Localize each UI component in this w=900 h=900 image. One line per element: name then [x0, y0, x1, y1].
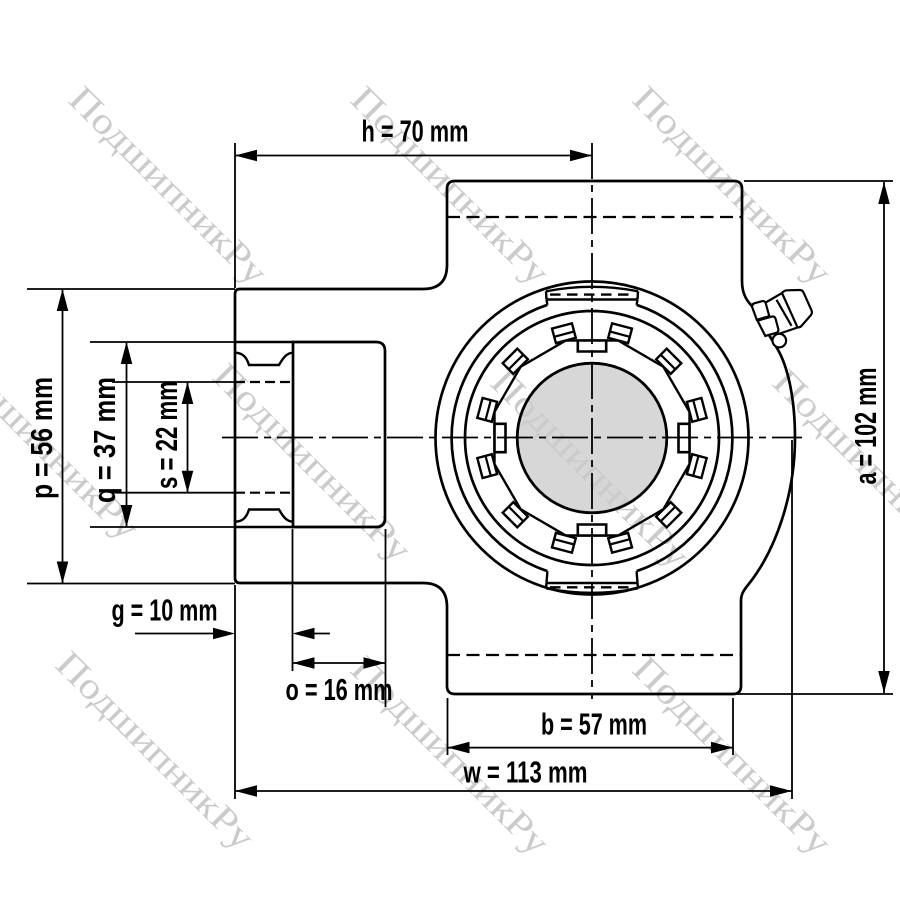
svg-text:q = 37 mm: q = 37 mm [87, 377, 122, 503]
svg-text:h = 70 mm: h = 70 mm [362, 114, 469, 149]
svg-text:b = 57 mm: b = 57 mm [541, 707, 647, 742]
svg-text:g = 10 mm: g = 10 mm [112, 593, 218, 628]
svg-text:o = 16 mm: o = 16 mm [286, 672, 393, 707]
svg-text:a = 102 mm: a = 102 mm [848, 368, 883, 485]
svg-text:s = 22 mm: s = 22 mm [149, 381, 184, 489]
svg-text:p = 56 mm: p = 56 mm [24, 377, 59, 499]
svg-text:w = 113 mm: w = 113 mm [463, 755, 588, 790]
